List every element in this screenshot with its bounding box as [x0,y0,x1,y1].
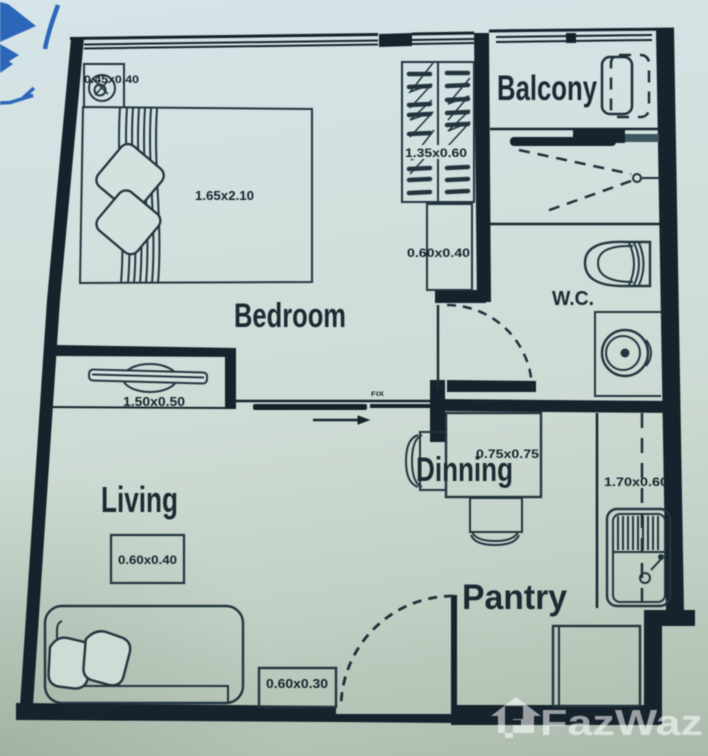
svg-text:Bedroom: Bedroom [234,297,346,335]
svg-text:Balcony: Balcony [497,69,597,108]
svg-text:1.35x0.60: 1.35x0.60 [405,146,467,160]
svg-text:FIX: FIX [371,391,385,398]
svg-text:0.45x0.40: 0.45x0.40 [84,74,139,86]
svg-text:1.70x0.60: 1.70x0.60 [604,475,668,489]
svg-text:Pantry: Pantry [462,578,568,617]
svg-text:W.C.: W.C. [552,288,594,310]
svg-text:0.75x0.75: 0.75x0.75 [476,447,539,461]
svg-text:0.60x0.40: 0.60x0.40 [118,553,177,567]
svg-text:1.50x0.50: 1.50x0.50 [123,395,185,409]
svg-text:Living: Living [101,479,178,520]
svg-text:1.65x2.10: 1.65x2.10 [195,189,254,203]
svg-text:FazWaz: FazWaz [540,702,703,743]
svg-text:0.60x0.40: 0.60x0.40 [407,246,470,260]
svg-text:0.60x0.30: 0.60x0.30 [266,676,328,691]
